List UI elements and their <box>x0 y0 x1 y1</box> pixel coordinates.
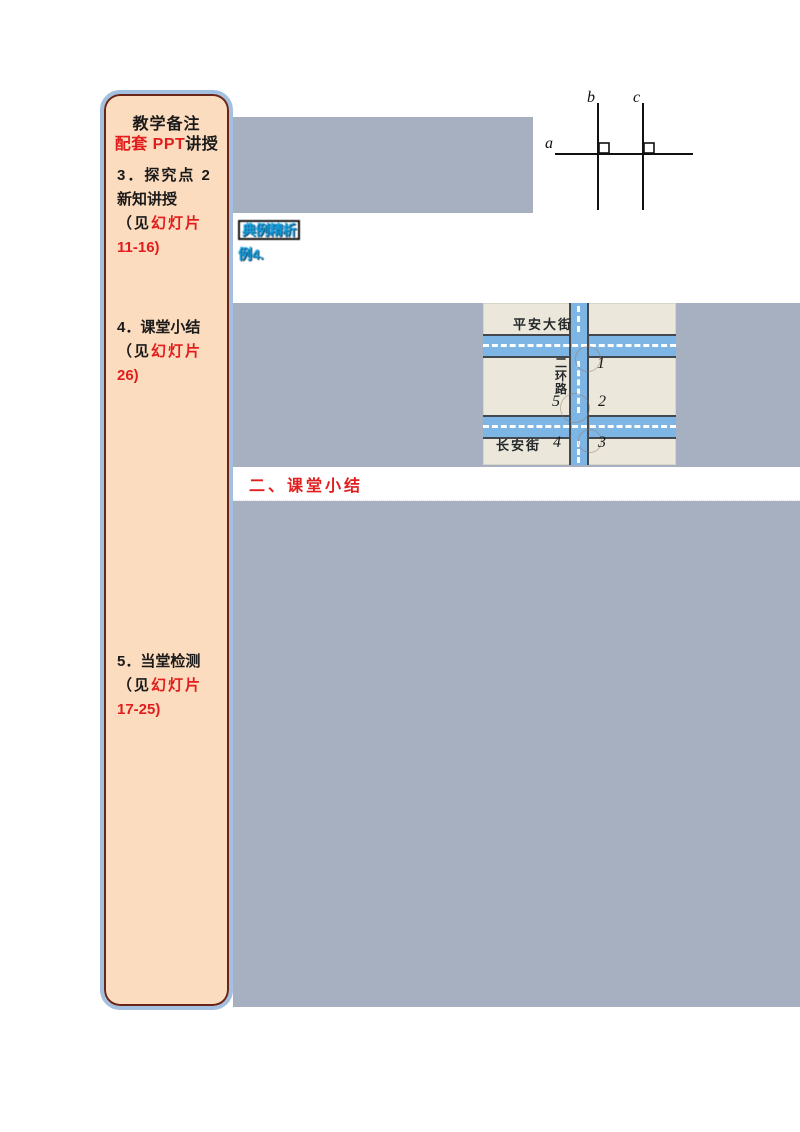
angle-2-label: 2 <box>598 393 606 411</box>
shaded-region-top <box>233 117 534 213</box>
annotation-line-1: 典例精析 <box>238 220 300 240</box>
sidebar-item-5: 5．当堂检测 （见幻灯片 17-25) <box>117 650 225 722</box>
item-3-pages: 11-16) <box>117 236 225 260</box>
road-centerline <box>483 425 676 428</box>
item-3-see: （见幻灯片 <box>117 212 225 236</box>
erhuan-road-label: 二环路 <box>554 357 568 396</box>
pingan-street-label: 平安大街 <box>513 314 573 333</box>
angle-5-label: 5 <box>552 393 560 411</box>
angle-3-label: 3 <box>598 434 606 452</box>
line-c-label: c <box>633 90 640 106</box>
sidebar-item-3: 3．探究点 2 新知讲授 （见幻灯片 11-16) <box>117 164 225 260</box>
angle-4-label: 4 <box>553 434 561 452</box>
shaded-region-bottom <box>233 501 800 1007</box>
blue-annotation: 典例精析 例4. <box>238 220 300 264</box>
road-centerline <box>577 306 580 332</box>
sidebar-subtitle-red: 配套 PPT <box>115 136 186 153</box>
section-heading-strip: 二、课堂小结 <box>233 467 800 501</box>
road-centerline <box>483 344 676 347</box>
item-5-see: （见幻灯片 <box>117 674 225 698</box>
street-map-image: 平安大街 二环路 长安街 1 2 3 4 5 <box>483 303 676 465</box>
angle-1-label: 1 <box>597 355 605 373</box>
sidebar-subtitle-black: 讲授 <box>185 136 218 153</box>
sidebar-subtitle: 配套 PPT讲授 <box>104 130 229 154</box>
line-b-label: b <box>587 90 595 106</box>
document-page: 教学备注 配套 PPT讲授 3．探究点 2 新知讲授 （见幻灯片 11-16) … <box>0 0 800 1132</box>
sidebar-item-4: 4．课堂小结 （见幻灯片 26) <box>117 316 225 388</box>
teaching-notes-sidebar: 教学备注 配套 PPT讲授 3．探究点 2 新知讲授 （见幻灯片 11-16) … <box>100 90 233 1010</box>
item-3-title2: 新知讲授 <box>117 188 225 212</box>
item-5-title: 5．当堂检测 <box>117 650 225 674</box>
item-3-title: 3．探究点 2 <box>117 164 225 188</box>
item-5-pages: 17-25) <box>117 698 225 722</box>
item-4-see: （见幻灯片 <box>117 340 225 364</box>
annotation-line-2: 例4. <box>238 244 300 264</box>
item-4-title: 4．课堂小结 <box>117 316 225 340</box>
changan-street-label: 长安街 <box>496 435 541 454</box>
item-4-pages: 26) <box>117 364 225 388</box>
section-heading: 二、课堂小结 <box>249 472 363 496</box>
angle-arc <box>560 393 590 423</box>
line-a-label: a <box>545 135 553 152</box>
perpendicular-lines-diagram: a b c <box>533 90 800 218</box>
